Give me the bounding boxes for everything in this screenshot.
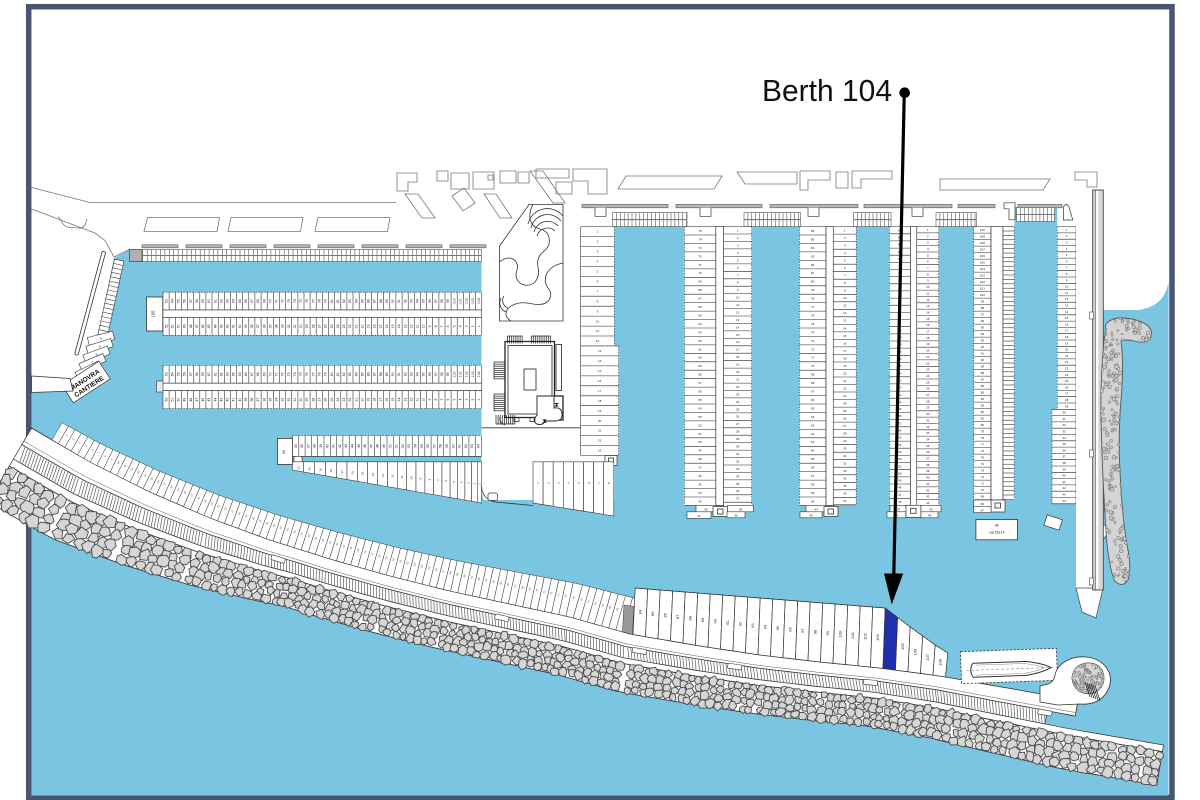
svg-text:101: 101 (459, 371, 463, 377)
svg-text:16: 16 (598, 379, 602, 383)
svg-text:54: 54 (414, 444, 418, 448)
svg-text:87: 87 (981, 378, 985, 382)
svg-text:96: 96 (428, 372, 432, 376)
svg-text:70: 70 (811, 364, 815, 368)
svg-text:86: 86 (663, 612, 668, 617)
svg-text:27: 27 (736, 422, 740, 426)
svg-text:15: 15 (1065, 316, 1069, 320)
svg-text:44: 44 (1062, 499, 1066, 503)
svg-text:25: 25 (736, 407, 740, 411)
svg-text:29: 29 (736, 437, 740, 441)
svg-text:54: 54 (170, 372, 174, 376)
svg-text:89: 89 (981, 365, 985, 369)
svg-text:84: 84 (354, 299, 358, 303)
svg-text:70: 70 (269, 299, 273, 303)
svg-text:39: 39 (244, 324, 248, 328)
svg-text:105: 105 (151, 310, 156, 318)
svg-text:69: 69 (811, 373, 815, 377)
svg-text:29: 29 (926, 406, 930, 410)
svg-text:93: 93 (410, 372, 414, 376)
svg-text:30: 30 (736, 445, 740, 449)
svg-text:26: 26 (324, 398, 328, 402)
svg-text:18: 18 (843, 356, 847, 360)
svg-text:100: 100 (838, 630, 843, 637)
svg-text:95: 95 (422, 299, 426, 303)
svg-text:23: 23 (342, 398, 346, 402)
svg-text:70: 70 (981, 488, 985, 492)
svg-text:15: 15 (736, 333, 740, 337)
svg-text:29: 29 (305, 398, 309, 402)
svg-text:73: 73 (287, 299, 291, 303)
svg-text:56: 56 (426, 444, 430, 448)
svg-text:61: 61 (213, 299, 217, 303)
svg-text:73: 73 (811, 339, 815, 343)
svg-text:81: 81 (336, 372, 340, 376)
svg-text:32: 32 (1062, 423, 1066, 427)
svg-text:71: 71 (698, 263, 702, 267)
svg-text:27: 27 (318, 398, 322, 402)
svg-text:19: 19 (1065, 341, 1069, 345)
svg-text:18: 18 (1065, 335, 1069, 339)
svg-text:30: 30 (843, 447, 847, 451)
svg-text:99: 99 (981, 300, 985, 304)
svg-text:90: 90 (713, 618, 718, 623)
svg-text:31: 31 (736, 452, 740, 456)
svg-text:91: 91 (725, 620, 730, 625)
svg-text:84: 84 (981, 397, 985, 401)
svg-text:25: 25 (843, 409, 847, 413)
svg-text:103: 103 (980, 274, 985, 278)
svg-text:12: 12 (596, 339, 600, 343)
svg-text:76: 76 (305, 299, 309, 303)
svg-text:37: 37 (1062, 455, 1066, 459)
svg-text:41: 41 (1062, 480, 1066, 484)
svg-text:99: 99 (825, 630, 830, 635)
svg-text:18: 18 (926, 336, 930, 340)
svg-text:35: 35 (269, 324, 273, 328)
svg-text:96: 96 (981, 319, 985, 323)
svg-text:35: 35 (843, 484, 847, 488)
svg-text:44: 44 (213, 398, 217, 402)
svg-text:91: 91 (397, 372, 401, 376)
svg-text:23: 23 (342, 324, 346, 328)
svg-text:10: 10 (843, 296, 847, 300)
svg-text:48: 48 (189, 398, 193, 402)
svg-text:17: 17 (843, 349, 847, 353)
svg-text:103: 103 (875, 633, 880, 640)
svg-text:33: 33 (843, 469, 847, 473)
svg-text:4: 4 (459, 325, 463, 327)
svg-text:80: 80 (330, 372, 334, 376)
svg-text:107: 107 (980, 248, 985, 252)
svg-text:82: 82 (811, 263, 815, 267)
svg-text:55: 55 (177, 372, 181, 376)
svg-text:46: 46 (201, 398, 205, 402)
svg-text:43: 43 (929, 507, 933, 511)
svg-text:28: 28 (311, 324, 315, 328)
svg-text:95: 95 (422, 372, 426, 376)
svg-text:49: 49 (698, 449, 702, 453)
svg-text:32: 32 (926, 425, 930, 429)
svg-text:76: 76 (305, 372, 309, 376)
svg-text:83: 83 (811, 254, 815, 258)
svg-text:96: 96 (788, 627, 793, 632)
svg-text:39: 39 (926, 469, 930, 473)
svg-text:72: 72 (811, 347, 815, 351)
svg-text:54: 54 (170, 299, 174, 303)
svg-text:107: 107 (925, 653, 930, 660)
svg-text:41: 41 (332, 444, 336, 448)
svg-text:63: 63 (226, 299, 230, 303)
svg-text:55: 55 (420, 444, 424, 448)
svg-text:14: 14 (598, 359, 602, 363)
svg-text:78: 78 (811, 297, 815, 301)
svg-text:43: 43 (698, 499, 702, 503)
svg-text:18: 18 (736, 355, 740, 359)
svg-text:30: 30 (926, 412, 930, 416)
svg-text:59: 59 (811, 457, 815, 461)
svg-text:101: 101 (459, 298, 463, 304)
svg-text:19: 19 (367, 398, 371, 402)
svg-text:3: 3 (465, 399, 469, 401)
svg-text:86: 86 (367, 372, 371, 376)
svg-text:24: 24 (336, 398, 340, 402)
svg-text:25: 25 (330, 324, 334, 328)
svg-text:52: 52 (401, 444, 405, 448)
svg-text:25: 25 (926, 380, 930, 384)
svg-text:83: 83 (348, 299, 352, 303)
svg-text:70: 70 (269, 372, 273, 376)
svg-text:82: 82 (342, 372, 346, 376)
svg-text:23: 23 (1065, 367, 1069, 371)
svg-text:50: 50 (177, 324, 181, 328)
svg-text:50: 50 (388, 444, 392, 448)
svg-text:47: 47 (898, 493, 902, 497)
svg-text:74: 74 (811, 330, 815, 334)
svg-text:73: 73 (981, 469, 985, 473)
svg-text:60: 60 (207, 372, 211, 376)
svg-text:15: 15 (361, 472, 365, 476)
svg-text:36: 36 (926, 450, 930, 454)
svg-text:32: 32 (287, 324, 291, 328)
svg-text:62: 62 (698, 339, 702, 343)
svg-text:19: 19 (598, 409, 602, 413)
svg-text:61: 61 (213, 372, 217, 376)
svg-text:82: 82 (342, 299, 346, 303)
svg-text:85: 85 (650, 611, 655, 616)
svg-text:69: 69 (698, 280, 702, 284)
svg-text:31: 31 (293, 324, 297, 328)
svg-text:62: 62 (219, 299, 223, 303)
svg-text:54: 54 (811, 499, 815, 503)
svg-text:24: 24 (736, 400, 740, 404)
svg-text:13: 13 (736, 318, 740, 322)
svg-text:34: 34 (275, 398, 279, 402)
svg-text:56: 56 (698, 390, 702, 394)
svg-text:31: 31 (1062, 417, 1066, 421)
svg-text:86: 86 (367, 299, 371, 303)
svg-text:44: 44 (351, 444, 355, 448)
svg-text:2: 2 (471, 399, 475, 401)
svg-text:12: 12 (1065, 297, 1069, 301)
svg-text:46: 46 (898, 500, 902, 504)
svg-text:88: 88 (379, 372, 383, 376)
svg-text:15: 15 (391, 324, 395, 328)
svg-text:14: 14 (371, 473, 375, 477)
svg-text:97: 97 (434, 372, 438, 376)
svg-text:94: 94 (981, 332, 985, 336)
svg-text:45: 45 (207, 324, 211, 328)
svg-text:39: 39 (244, 398, 248, 402)
svg-text:90: 90 (391, 299, 395, 303)
svg-text:15: 15 (391, 398, 395, 402)
svg-text:23: 23 (736, 392, 740, 396)
svg-text:20: 20 (1065, 348, 1069, 352)
svg-text:20: 20 (598, 419, 602, 423)
svg-text:49: 49 (183, 398, 187, 402)
svg-text:46: 46 (363, 444, 367, 448)
svg-text:69: 69 (262, 372, 266, 376)
svg-text:43: 43 (809, 514, 813, 518)
svg-text:10: 10 (1065, 285, 1069, 289)
svg-text:93: 93 (981, 339, 985, 343)
svg-text:28: 28 (1065, 398, 1069, 402)
svg-text:44: 44 (213, 324, 217, 328)
svg-text:14: 14 (397, 398, 401, 402)
svg-text:57: 57 (189, 299, 193, 303)
svg-text:64: 64 (477, 444, 481, 448)
svg-text:67: 67 (811, 390, 815, 394)
svg-text:21: 21 (354, 398, 358, 402)
svg-text:98: 98 (440, 299, 444, 303)
svg-text:21: 21 (598, 429, 602, 433)
svg-text:13: 13 (843, 319, 847, 323)
svg-text:16: 16 (1065, 322, 1069, 326)
svg-text:36: 36 (843, 492, 847, 496)
svg-text:42: 42 (226, 324, 230, 328)
svg-text:37: 37 (843, 499, 847, 503)
svg-text:67: 67 (250, 372, 254, 376)
svg-text:37: 37 (306, 444, 310, 448)
svg-text:15: 15 (926, 317, 930, 321)
svg-text:92: 92 (981, 345, 985, 349)
svg-text:38: 38 (1062, 461, 1066, 465)
svg-text:67: 67 (981, 508, 985, 512)
svg-text:59: 59 (445, 444, 449, 448)
svg-text:47: 47 (195, 398, 199, 402)
svg-text:18: 18 (373, 324, 377, 328)
svg-text:56: 56 (183, 299, 187, 303)
svg-text:28: 28 (736, 430, 740, 434)
svg-text:108: 108 (938, 658, 943, 665)
svg-text:38: 38 (926, 463, 930, 467)
svg-text:79: 79 (324, 372, 328, 376)
svg-text:37: 37 (736, 497, 740, 501)
svg-text:98: 98 (813, 629, 818, 634)
svg-text:57: 57 (189, 372, 193, 376)
svg-text:38: 38 (313, 444, 317, 448)
svg-text:12: 12 (843, 311, 847, 315)
svg-text:37: 37 (256, 398, 260, 402)
svg-text:108: 108 (980, 241, 985, 245)
svg-text:47: 47 (698, 466, 702, 470)
svg-text:33: 33 (281, 398, 285, 402)
svg-text:37: 37 (926, 457, 930, 461)
svg-text:85: 85 (811, 237, 815, 241)
svg-text:109: 109 (980, 235, 985, 239)
svg-text:49: 49 (898, 479, 902, 483)
svg-text:11: 11 (736, 303, 739, 307)
svg-text:86: 86 (811, 229, 815, 233)
svg-text:94: 94 (763, 624, 768, 629)
svg-text:75: 75 (981, 456, 985, 460)
svg-text:80: 80 (981, 423, 985, 427)
svg-text:27: 27 (843, 424, 847, 428)
svg-text:41: 41 (926, 482, 930, 486)
svg-text:8: 8 (434, 399, 438, 401)
svg-text:55: 55 (698, 398, 702, 402)
svg-text:53: 53 (898, 450, 902, 454)
svg-text:104: 104 (477, 371, 481, 377)
svg-text:84: 84 (354, 372, 358, 376)
svg-text:55: 55 (177, 299, 181, 303)
svg-text:88: 88 (379, 299, 383, 303)
svg-text:34: 34 (926, 438, 930, 442)
svg-text:100: 100 (980, 293, 985, 297)
svg-text:71: 71 (811, 356, 815, 360)
svg-text:77: 77 (811, 305, 815, 309)
svg-text:20: 20 (843, 371, 847, 375)
svg-text:53: 53 (164, 299, 168, 303)
svg-text:32: 32 (736, 459, 740, 463)
svg-text:26: 26 (736, 415, 740, 419)
svg-text:48: 48 (189, 324, 193, 328)
svg-text:4: 4 (459, 399, 463, 401)
svg-text:68: 68 (698, 288, 702, 292)
svg-text:27: 27 (318, 324, 322, 328)
svg-text:10: 10 (410, 476, 414, 480)
svg-text:36: 36 (300, 444, 304, 448)
svg-text:104: 104 (477, 298, 481, 304)
svg-text:35: 35 (269, 398, 273, 402)
svg-text:85: 85 (360, 372, 364, 376)
svg-text:87: 87 (373, 299, 377, 303)
svg-text:46: 46 (201, 324, 205, 328)
svg-text:17: 17 (926, 330, 930, 334)
svg-text:71: 71 (275, 299, 279, 303)
svg-text:17: 17 (598, 389, 602, 393)
svg-text:20: 20 (736, 370, 740, 374)
svg-text:97: 97 (434, 299, 438, 303)
svg-text:67: 67 (698, 297, 702, 301)
svg-text:17: 17 (736, 348, 740, 352)
svg-text:10: 10 (736, 296, 740, 300)
svg-text:78: 78 (981, 436, 985, 440)
svg-text:16: 16 (385, 324, 389, 328)
svg-text:12: 12 (391, 474, 395, 478)
svg-text:5: 5 (452, 399, 456, 401)
svg-text:21: 21 (843, 379, 847, 383)
svg-text:23: 23 (926, 368, 930, 372)
svg-text:43: 43 (219, 324, 223, 328)
svg-text:49: 49 (183, 324, 187, 328)
svg-text:53: 53 (698, 415, 702, 419)
svg-text:2: 2 (471, 325, 475, 327)
svg-text:12: 12 (736, 310, 740, 314)
svg-text:106: 106 (913, 648, 918, 655)
svg-text:24: 24 (926, 374, 930, 378)
svg-text:35: 35 (1062, 442, 1066, 446)
svg-text:13: 13 (403, 398, 407, 402)
svg-text:43: 43 (1062, 493, 1066, 497)
svg-text:53: 53 (407, 444, 411, 448)
svg-text:32: 32 (287, 398, 291, 402)
svg-text:22: 22 (926, 361, 930, 365)
svg-text:38: 38 (739, 507, 743, 511)
svg-text:73: 73 (698, 246, 702, 250)
svg-text:22: 22 (598, 439, 602, 443)
svg-text:29: 29 (305, 324, 309, 328)
svg-text:7: 7 (440, 325, 444, 327)
svg-text:84: 84 (811, 246, 815, 250)
svg-text:68: 68 (981, 502, 985, 506)
svg-text:73: 73 (287, 372, 291, 376)
svg-text:54: 54 (898, 443, 902, 447)
svg-text:74: 74 (981, 462, 985, 466)
svg-text:63: 63 (811, 423, 815, 427)
svg-text:45: 45 (698, 483, 702, 487)
svg-text:14: 14 (926, 311, 930, 315)
svg-text:40: 40 (926, 476, 930, 480)
svg-text:20: 20 (360, 324, 364, 328)
svg-text:19: 19 (367, 324, 371, 328)
svg-text:11: 11 (926, 291, 929, 295)
svg-text:21: 21 (354, 324, 358, 328)
svg-text:106: 106 (980, 254, 985, 258)
svg-text:26: 26 (843, 417, 847, 421)
svg-text:61: 61 (811, 440, 815, 444)
svg-text:42: 42 (226, 398, 230, 402)
svg-text:102: 102 (863, 632, 868, 639)
svg-text:16: 16 (843, 341, 847, 345)
svg-text:80: 80 (330, 299, 334, 303)
svg-text:28: 28 (311, 398, 315, 402)
svg-text:33: 33 (736, 467, 740, 471)
svg-text:25: 25 (330, 398, 334, 402)
svg-text:35: 35 (926, 444, 930, 448)
svg-text:17: 17 (340, 470, 344, 474)
svg-text:10: 10 (422, 324, 426, 328)
svg-text:12: 12 (926, 298, 930, 302)
svg-text:39: 39 (734, 514, 738, 518)
svg-text:18: 18 (373, 398, 377, 402)
svg-text:79: 79 (981, 430, 985, 434)
svg-text:13: 13 (598, 349, 602, 353)
svg-text:24: 24 (1065, 373, 1069, 377)
svg-text:26: 26 (324, 324, 328, 328)
svg-text:78: 78 (318, 372, 322, 376)
svg-text:34: 34 (736, 474, 740, 478)
svg-text:cat 26x14: cat 26x14 (989, 531, 1005, 535)
svg-text:13: 13 (381, 473, 385, 477)
svg-text:85: 85 (360, 299, 364, 303)
svg-text:52: 52 (164, 324, 168, 328)
svg-text:50: 50 (898, 471, 902, 475)
svg-text:89: 89 (700, 617, 705, 622)
svg-text:28: 28 (926, 399, 930, 403)
svg-text:54: 54 (698, 406, 702, 410)
svg-text:103: 103 (471, 298, 475, 304)
